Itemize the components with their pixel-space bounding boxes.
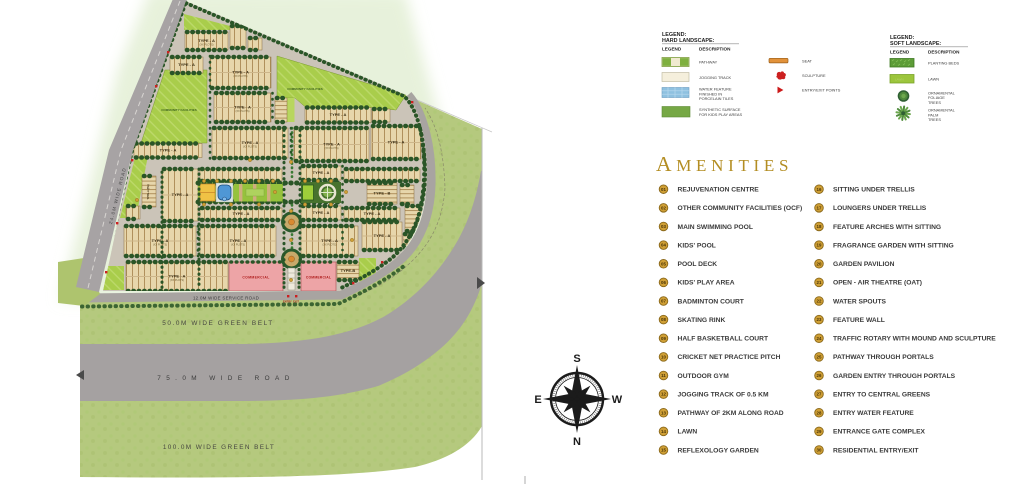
svg-text:12: 12 (661, 392, 666, 397)
svg-text:TREES: TREES (928, 100, 941, 105)
svg-text:TYPE - A: TYPE - A (364, 211, 381, 216)
svg-text:TYPE - A: TYPE - A (242, 140, 259, 145)
svg-text:TYPE - A: TYPE - A (178, 62, 195, 67)
svg-text:ENTRANCE GATE COMPLEX: ENTRANCE GATE COMPLEX (833, 429, 926, 436)
svg-text:TREES: TREES (928, 117, 941, 122)
svg-text:COMMERCIAL: COMMERCIAL (242, 276, 269, 280)
svg-text:GARDEN PAVILION: GARDEN PAVILION (833, 261, 895, 268)
svg-text:LEGEND: LEGEND (890, 50, 910, 55)
svg-text:13: 13 (661, 410, 666, 415)
svg-text:TYPE - A: TYPE - A (234, 104, 251, 109)
svg-text:21: 21 (817, 280, 822, 285)
svg-text:SOFT LANDSCAPE:: SOFT LANDSCAPE: (890, 41, 941, 47)
svg-text:TYPE - A: TYPE - A (232, 69, 249, 74)
svg-text:25: 25 (817, 354, 822, 359)
svg-text:TYPE - A: TYPE - A (230, 238, 247, 243)
svg-text:DESCRIPTION: DESCRIPTION (699, 47, 731, 52)
svg-text:PATHWAY: PATHWAY (699, 60, 718, 65)
svg-text:(XX PLOTS): (XX PLOTS) (243, 146, 257, 149)
svg-text:20: 20 (817, 261, 822, 266)
svg-text:TYPE - A: TYPE - A (160, 147, 177, 152)
svg-text:26: 26 (817, 373, 822, 378)
svg-text:PLANTING BEDS: PLANTING BEDS (928, 60, 960, 65)
svg-text:07: 07 (661, 299, 666, 304)
svg-text:GARDEN ENTRY THROUGH PORTALS: GARDEN ENTRY THROUGH PORTALS (833, 373, 956, 380)
svg-text:ENTRY/EXIT POINTS: ENTRY/EXIT POINTS (802, 87, 841, 92)
svg-text:16: 16 (817, 187, 822, 192)
svg-text:REFLEXOLOGY GARDEN: REFLEXOLOGY GARDEN (678, 447, 759, 454)
svg-text:FEATURE WALL: FEATURE WALL (833, 317, 885, 324)
svg-text:LAWN: LAWN (895, 78, 904, 82)
svg-text:COMMERCIAL: COMMERCIAL (306, 276, 331, 280)
svg-text:S: S (573, 353, 580, 365)
svg-text:TRAFFIC ROTARY WITH MOUND AND: TRAFFIC ROTARY WITH MOUND AND SCULPTURE (833, 336, 996, 343)
svg-text:SEAT: SEAT (802, 58, 812, 63)
svg-text:100.0M WIDE GREEN BELT: 100.0M WIDE GREEN BELT (163, 444, 275, 451)
svg-text:01: 01 (661, 187, 666, 192)
svg-text:RESIDENTIAL ENTRY/EXIT: RESIDENTIAL ENTRY/EXIT (833, 447, 919, 454)
svg-text:ENTRY WATER FEATURE: ENTRY WATER FEATURE (833, 410, 914, 417)
svg-text:(XX PLOTS): (XX PLOTS) (325, 147, 339, 150)
svg-text:POOL DECK: POOL DECK (678, 261, 718, 268)
svg-text:SITTING UNDER TRELLIS: SITTING UNDER TRELLIS (833, 187, 915, 194)
svg-text:TYPE - A: TYPE - A (374, 233, 391, 238)
svg-text:AMENITIES: AMENITIES (656, 152, 793, 176)
svg-text:DESCRIPTION: DESCRIPTION (928, 50, 960, 55)
svg-text:22: 22 (817, 299, 822, 304)
svg-text:(XX PLOTS): (XX PLOTS) (170, 279, 184, 282)
svg-text:LEGEND: LEGEND (662, 47, 682, 52)
svg-text:CRICKET NET PRACTICE PITCH: CRICKET NET PRACTICE PITCH (678, 354, 781, 361)
svg-text:02: 02 (661, 205, 666, 210)
svg-text:W: W (612, 394, 623, 406)
svg-text:19: 19 (817, 243, 822, 248)
svg-text:MAIN SWIMMING POOL: MAIN SWIMMING POOL (678, 224, 753, 231)
svg-text:SKATING RINK: SKATING RINK (678, 317, 726, 324)
svg-text:27: 27 (817, 392, 822, 397)
svg-text:JOGGING TRACK OF 0.5 KM: JOGGING TRACK OF 0.5 KM (678, 391, 769, 398)
svg-text:PATHWAY THROUGH PORTALS: PATHWAY THROUGH PORTALS (833, 354, 934, 361)
svg-text:08: 08 (661, 317, 666, 322)
svg-text:COMMUNITY FACILITIES: COMMUNITY FACILITIES (287, 87, 322, 91)
svg-text:LAWN: LAWN (928, 76, 939, 81)
svg-text:28: 28 (817, 410, 822, 415)
svg-text:WATER SPOUTS: WATER SPOUTS (833, 298, 887, 305)
svg-text:JOGGING TRACK: JOGGING TRACK (699, 75, 732, 80)
svg-text:14: 14 (661, 429, 666, 434)
svg-text:E: E (534, 394, 541, 406)
svg-text:TYPE-A (PA): TYPE-A (PA) (146, 184, 150, 199)
svg-text:TYPE - A: TYPE - A (323, 141, 340, 146)
svg-text:PATHWAY OF 2KM ALONG ROAD: PATHWAY OF 2KM ALONG ROAD (678, 410, 784, 417)
svg-text:TYPE - A: TYPE - A (388, 139, 405, 144)
svg-text:(XX PLOTS): (XX PLOTS) (236, 110, 250, 113)
svg-text:(XX PLOTS): (XX PLOTS) (323, 244, 337, 247)
svg-text:06: 06 (661, 280, 666, 285)
svg-text:HARD LANDSCAPE:: HARD LANDSCAPE: (662, 38, 715, 44)
svg-text:(XX PLOTS): (XX PLOTS) (200, 44, 214, 47)
svg-text:TYPE - A: TYPE - A (152, 238, 169, 243)
svg-text:29: 29 (817, 429, 822, 434)
svg-text:17: 17 (817, 205, 822, 210)
svg-text:COMMUNITY FACILITIES: COMMUNITY FACILITIES (161, 108, 196, 112)
svg-text:12.0M WIDE SERVICE ROAD: 12.0M WIDE SERVICE ROAD (193, 295, 259, 300)
svg-text:OPEN - AIR THEATRE (OAT): OPEN - AIR THEATRE (OAT) (833, 280, 922, 287)
svg-text:(XX PLOTS): (XX PLOTS) (234, 75, 248, 78)
svg-text:FEATURE ARCHES WITH SITTING: FEATURE ARCHES WITH SITTING (833, 224, 941, 231)
svg-text:50.0M WIDE GREEN BELT: 50.0M WIDE GREEN BELT (162, 320, 274, 327)
svg-text:TYPE - A: TYPE - A (198, 38, 215, 43)
svg-text:30: 30 (817, 448, 822, 453)
svg-text:LAWN: LAWN (678, 429, 698, 436)
svg-text:18: 18 (817, 224, 822, 229)
svg-text:TYPE - A: TYPE - A (321, 238, 338, 243)
svg-text:OUTDOOR GYM: OUTDOOR GYM (678, 373, 730, 380)
svg-text:TYPE-B: TYPE-B (341, 268, 356, 273)
svg-text:03: 03 (661, 224, 666, 229)
svg-text:PORCELAIN TILES: PORCELAIN TILES (699, 96, 734, 101)
svg-text:15: 15 (661, 448, 666, 453)
svg-text:FOR KIDS PLAY AREAS: FOR KIDS PLAY AREAS (699, 112, 743, 117)
svg-text:BADMINTON COURT: BADMINTON COURT (678, 298, 745, 305)
svg-text:LOUNGERS UNDER TRELLIS: LOUNGERS UNDER TRELLIS (833, 205, 927, 212)
svg-text:OTHER COMMUNITY FACILITIES (OC: OTHER COMMUNITY FACILITIES (OCF) (678, 205, 803, 212)
svg-text:04: 04 (661, 243, 666, 248)
svg-text:TYPE - A: TYPE - A (169, 273, 186, 278)
svg-text:REJUVENATION CENTRE: REJUVENATION CENTRE (678, 187, 760, 194)
svg-text:75.0M WIDE ROAD: 75.0M WIDE ROAD (157, 375, 294, 382)
svg-text:TYPE - A: TYPE - A (313, 170, 330, 175)
svg-text:23: 23 (817, 317, 822, 322)
svg-text:HALF BASKETBALL COURT: HALF BASKETBALL COURT (678, 336, 769, 343)
svg-text:24: 24 (817, 336, 822, 341)
svg-text:(XX PLOTS): (XX PLOTS) (153, 244, 167, 247)
svg-text:ENTRY TO CENTRAL GREENS: ENTRY TO CENTRAL GREENS (833, 391, 931, 398)
svg-text:TYPE - A: TYPE - A (233, 211, 250, 216)
svg-text:SCULPTURE: SCULPTURE (802, 73, 826, 78)
svg-text:(XX PLOTS): (XX PLOTS) (231, 244, 245, 247)
svg-text:KIDS' PLAY AREA: KIDS' PLAY AREA (678, 280, 735, 287)
svg-text:TYPE - A: TYPE - A (313, 210, 330, 215)
svg-text:TYPE - B: TYPE - B (374, 190, 391, 195)
svg-text:N: N (573, 436, 581, 448)
svg-text:TYPE - A: TYPE - A (172, 192, 189, 197)
svg-text:10: 10 (661, 354, 666, 359)
svg-text:TYPE - A: TYPE - A (330, 112, 347, 117)
svg-text:ENTRY EXIT: ENTRY EXIT (283, 300, 299, 304)
svg-text:KIDS' POOL: KIDS' POOL (678, 242, 716, 249)
svg-text:FRAGRANCE GARDEN WITH SITTING: FRAGRANCE GARDEN WITH SITTING (833, 242, 954, 249)
svg-text:09: 09 (661, 336, 666, 341)
svg-text:05: 05 (661, 261, 666, 266)
svg-text:11: 11 (661, 373, 666, 378)
